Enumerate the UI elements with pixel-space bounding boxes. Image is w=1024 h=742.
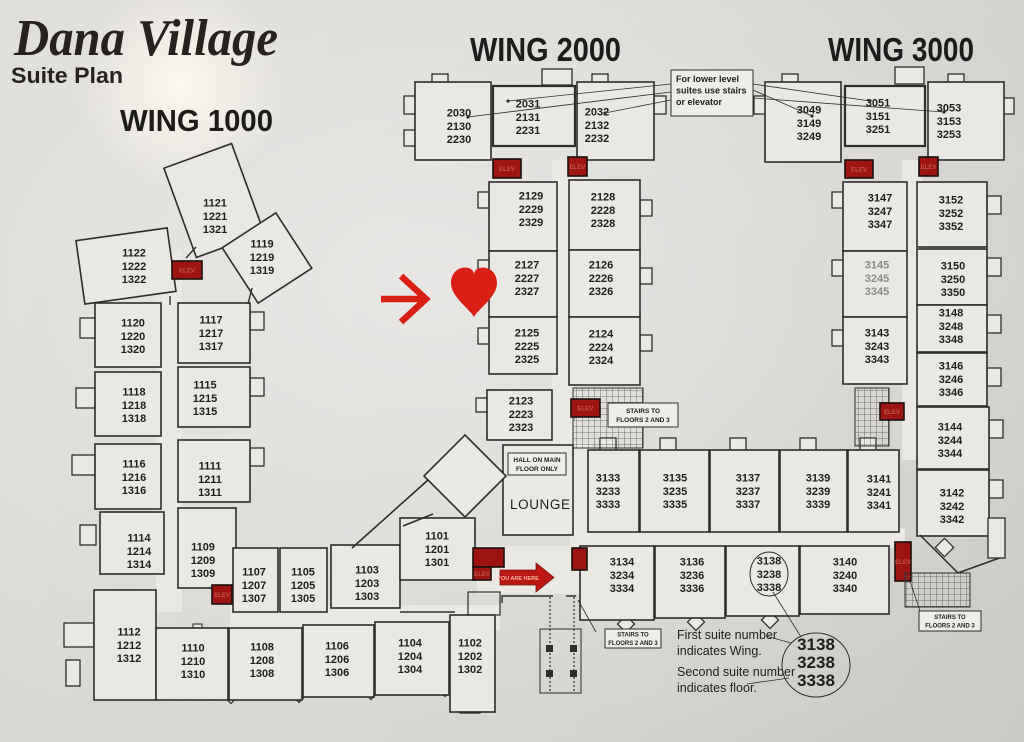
svg-text:ELEV: ELEV: [179, 269, 195, 275]
svg-text:111012101310: 111012101310: [181, 643, 205, 681]
svg-text:203021302230: 203021302230: [447, 108, 471, 146]
svg-text:ELEV: ELEV: [570, 165, 586, 171]
svg-text:112112211321: 112112211321: [203, 198, 227, 236]
svg-text:110512051305: 110512051305: [291, 567, 315, 605]
svg-text:305131513251: 305131513251: [866, 98, 890, 136]
svg-text:314332433343: 314332433343: [865, 328, 889, 366]
svg-text:LOUNGE: LOUNGE: [510, 497, 571, 512]
svg-text:313532353335: 313532353335: [663, 473, 687, 511]
svg-text:314532453345: 314532453345: [865, 260, 889, 298]
svg-text:212622262326: 212622262326: [589, 260, 613, 298]
svg-text:111412141314: 111412141314: [127, 533, 152, 571]
svg-text:ELEV: ELEV: [884, 410, 900, 416]
svg-text:212422242324: 212422242324: [589, 329, 614, 367]
svg-text:111912191319: 111912191319: [250, 239, 274, 277]
svg-text:313432343334: 313432343334: [610, 557, 635, 595]
svg-text:203121312231: 203121312231: [516, 99, 540, 137]
svg-text:313932393339: 313932393339: [806, 473, 830, 511]
svg-text:ELEV: ELEV: [499, 167, 515, 173]
svg-text:Suite Plan: Suite Plan: [11, 63, 123, 88]
svg-text:First suite numberindicates Wi: First suite numberindicates Wing.: [677, 628, 777, 658]
svg-text:111212121312: 111212121312: [117, 627, 141, 665]
svg-text:313732373337: 313732373337: [736, 473, 760, 511]
svg-text:111812181318: 111812181318: [122, 387, 146, 425]
svg-text:ELEV: ELEV: [578, 407, 594, 413]
svg-text:212522252325: 212522252325: [515, 328, 539, 366]
svg-text:111712171317: 111712171317: [199, 315, 223, 353]
svg-text:ELEV: ELEV: [474, 572, 490, 578]
svg-text:ELEV: ELEV: [895, 560, 911, 566]
svg-text:YOU ARE HERE: YOU ARE HERE: [497, 576, 539, 582]
svg-text:212722272327: 212722272327: [515, 260, 539, 298]
svg-text:111112111311: 111112111311: [198, 461, 222, 499]
svg-text:110812081308: 110812081308: [250, 642, 274, 680]
svg-text:110312031303: 110312031303: [355, 565, 379, 603]
svg-text:313832383338: 313832383338: [797, 635, 835, 690]
svg-text:314432443344: 314432443344: [938, 422, 963, 460]
svg-text:304931493249: 304931493249: [797, 105, 821, 143]
svg-text:111512151315: 111512151315: [193, 380, 217, 418]
svg-text:WING 3000: WING 3000: [828, 31, 974, 68]
svg-text:314832483348: 314832483348: [939, 308, 963, 346]
svg-text:110612061306: 110612061306: [325, 641, 349, 679]
svg-text:110212021302: 110212021302: [458, 638, 482, 676]
svg-text:WING 1000: WING 1000: [120, 103, 273, 138]
svg-text:112012201320: 112012201320: [121, 318, 145, 356]
svg-text:Dana Village: Dana Village: [13, 10, 278, 67]
svg-text:110412041304: 110412041304: [398, 638, 423, 676]
svg-text:314732473347: 314732473347: [868, 193, 892, 231]
svg-text:212822282328: 212822282328: [591, 192, 615, 230]
svg-text:212922292329: 212922292329: [519, 191, 543, 229]
svg-text:ELEV: ELEV: [851, 168, 867, 174]
svg-text:314032403340: 314032403340: [833, 557, 857, 595]
svg-text:315232523352: 315232523352: [939, 195, 963, 233]
svg-text:314132413341: 314132413341: [867, 474, 891, 512]
svg-text:313632363336: 313632363336: [680, 557, 704, 595]
svg-text:ELEV: ELEV: [921, 165, 937, 171]
svg-text:315032503350: 315032503350: [941, 261, 965, 299]
svg-text:110112011301: 110112011301: [425, 531, 449, 569]
svg-text:WING 2000: WING 2000: [470, 31, 621, 68]
svg-text:313832383338: 313832383338: [757, 556, 781, 594]
svg-text:313332333333: 313332333333: [596, 473, 620, 511]
svg-text:212322232323: 212322232323: [509, 396, 533, 434]
svg-text:111612161316: 111612161316: [122, 459, 146, 497]
svg-text:110912091309: 110912091309: [191, 542, 215, 580]
svg-text:305331533253: 305331533253: [937, 103, 961, 141]
svg-text:314232423342: 314232423342: [940, 488, 964, 526]
svg-text:314632463346: 314632463346: [939, 361, 963, 399]
svg-text:ELEV: ELEV: [214, 593, 230, 599]
svg-text:110712071307: 110712071307: [242, 567, 266, 605]
svg-text:112212221322: 112212221322: [122, 248, 146, 286]
